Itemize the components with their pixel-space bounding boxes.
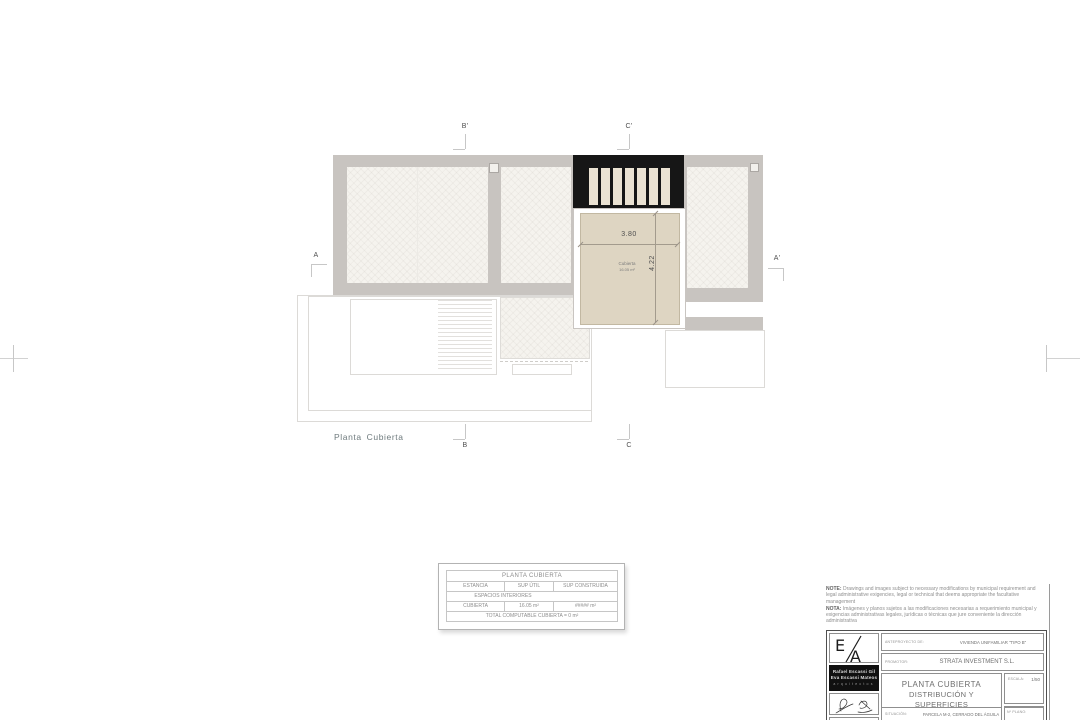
drawing-sheet: 3.80 4.22 Cubierta 16.05 m² B' C' A A' B… [0, 0, 1080, 720]
stairs-hatch [438, 300, 492, 372]
louver-slat [661, 168, 670, 205]
section-marker-tick [768, 268, 784, 269]
section-marker-tick [311, 264, 327, 265]
roof-drain-left [489, 163, 499, 173]
note-english-text: Drawings and images subject to necessary… [826, 586, 1036, 605]
logo-letter-e: E [835, 636, 845, 655]
sheet-frame-right-edge [1049, 584, 1050, 720]
project-value: VIVIENDA UNIFAMILIAR "TIPO B" [937, 640, 1049, 645]
col-header-estancia: ESTANCIA [447, 582, 505, 592]
note-spanish-text: Imágenes y planos sujetos a las modifica… [826, 606, 1037, 625]
section-marker-line [465, 134, 466, 149]
lower-floor-step-outline [512, 364, 572, 375]
scale-cell: ESCALA: 1/50 [1004, 673, 1044, 704]
note-spanish: NOTA: Imágenes y planos sujetos a las mo… [826, 606, 1046, 625]
cell-sup-construida: ##### m² [554, 602, 618, 612]
table-section-header: ESPACIOS INTERIORES [447, 592, 618, 602]
dimension-width-value: 3.80 [595, 231, 663, 238]
scale-value: 1/50 [1031, 677, 1040, 700]
note-spanish-label: NOTA: [826, 606, 841, 612]
note-english: NOTE: Drawings and images subject to nec… [826, 586, 1046, 605]
section-marker-line [311, 264, 312, 277]
col-header-sup-construida: SUP CONSTRUIDA [554, 582, 618, 592]
promoter-row: PROMOTOR: STRATA INVESTMENT S.L. [881, 653, 1044, 671]
section-marker-line [465, 424, 466, 439]
dimension-line-horizontal [580, 244, 678, 245]
section-marker-line [783, 268, 784, 281]
roof-panel-divider [417, 167, 418, 283]
louver-slat [637, 168, 646, 205]
section-marker-b-prime: B' [457, 123, 473, 130]
location-cell: SITUACIÓN: PARCELA M-2, CERRADO DEL ÁGUI… [881, 707, 1002, 720]
pergola-roof [573, 155, 684, 208]
plan-number-cell: Nº PLANO: [1004, 707, 1044, 720]
project-row: ANTEPROYECTO DE: VIVIENDA UNIFAMILIAR "T… [881, 633, 1044, 651]
architect-names-band: Rafael Escassi Gil Eva Escassi Mateos ar… [829, 665, 879, 691]
trim-mark-right-vertical [1046, 345, 1047, 372]
architect-logo-cell: E A [829, 633, 879, 663]
louver-slat [601, 168, 610, 205]
section-marker-a-prime: A' [769, 255, 785, 262]
title-block-data-column: ANTEPROYECTO DE: VIVIENDA UNIFAMILIAR "T… [881, 633, 1044, 720]
signature-cell [829, 693, 879, 715]
roof-drain-right [750, 163, 759, 172]
location-row: SITUACIÓN: PARCELA M-2, CERRADO DEL ÁGUI… [881, 707, 1044, 720]
louver-slat [613, 168, 622, 205]
roof-panel-left [347, 167, 488, 283]
surface-table-title: PLANTA CUBIERTA [447, 571, 618, 582]
signature-icon [831, 695, 877, 715]
plan-number-label: Nº PLANO: [1007, 710, 1026, 714]
lower-floor-outline-right [665, 330, 765, 388]
roof-edge-band-right [685, 317, 763, 330]
section-marker-c-prime: C' [621, 123, 637, 130]
pergola-louvers [589, 168, 670, 205]
trim-mark-right [1046, 358, 1080, 359]
trim-mark-left [0, 358, 28, 359]
section-marker-tick [453, 149, 465, 150]
louver-slat [649, 168, 658, 205]
architect-name-2: Eva Escassi Mateos [830, 675, 878, 681]
promoter-value: STRATA INVESTMENT S.L. [917, 659, 1037, 665]
surface-table-footer: TOTAL COMPUTABLE CUBIERTA = 0 m² [447, 612, 618, 622]
roof-panel-middle [501, 167, 571, 283]
logo-letter-a: A [850, 647, 861, 663]
architects-caption: arquitectos [830, 682, 878, 686]
dimension-height-value: 4.22 [649, 248, 661, 278]
section-marker-a: A [309, 252, 323, 259]
cell-sup-util: 16.05 m² [505, 602, 554, 612]
trim-mark-left-vertical [13, 345, 14, 372]
section-marker-tick [617, 149, 629, 150]
location-value: PARCELA M-2, CERRADO DEL ÁGUILA [910, 712, 1012, 717]
cell-estancia: CUBIERTA [447, 602, 505, 612]
louver-slat [589, 168, 598, 205]
section-marker-line [629, 134, 630, 149]
section-marker-b: B [458, 442, 472, 449]
location-label: SITUACIÓN: [885, 712, 907, 716]
louver-slat [625, 168, 634, 205]
drawing-title-line1: PLANTA CUBIERTA [882, 680, 1001, 690]
note-english-label: NOTE: [826, 586, 842, 592]
section-marker-c: C [622, 442, 636, 449]
ea-logo-icon: E A [831, 635, 877, 663]
drawing-title-row: PLANTA CUBIERTA DISTRIBUCIÓN Y SUPERFICI… [881, 673, 1044, 705]
room-area: 16.05 m² [609, 267, 645, 273]
roof-slab-right-extension [684, 295, 763, 302]
surface-table: PLANTA CUBIERTA ESTANCIA SUP ÚTIL SUP CO… [438, 563, 625, 630]
scale-label: ESCALA: [1008, 677, 1024, 700]
title-block: E A Rafael Escassi Gil Eva Escassi Mateo… [826, 630, 1047, 720]
hidden-edge-dashed-line [500, 361, 588, 362]
title-block-architect-column: E A Rafael Escassi Gil Eva Escassi Mateo… [829, 633, 879, 720]
notes-block: NOTE: Drawings and images subject to nec… [826, 586, 1046, 626]
roof-panel-right [687, 167, 748, 288]
col-header-sup-util: SUP ÚTIL [505, 582, 554, 592]
section-marker-tick [617, 439, 629, 440]
section-marker-tick [453, 439, 465, 440]
surface-table-grid: PLANTA CUBIERTA ESTANCIA SUP ÚTIL SUP CO… [446, 570, 618, 622]
project-label: ANTEPROYECTO DE: [885, 640, 924, 644]
section-marker-line [629, 424, 630, 439]
plan-title-label: Planta Cubierta [334, 432, 404, 442]
room-label: Cubierta 16.05 m² [609, 261, 645, 272]
promoter-label: PROMOTOR: [885, 660, 908, 664]
